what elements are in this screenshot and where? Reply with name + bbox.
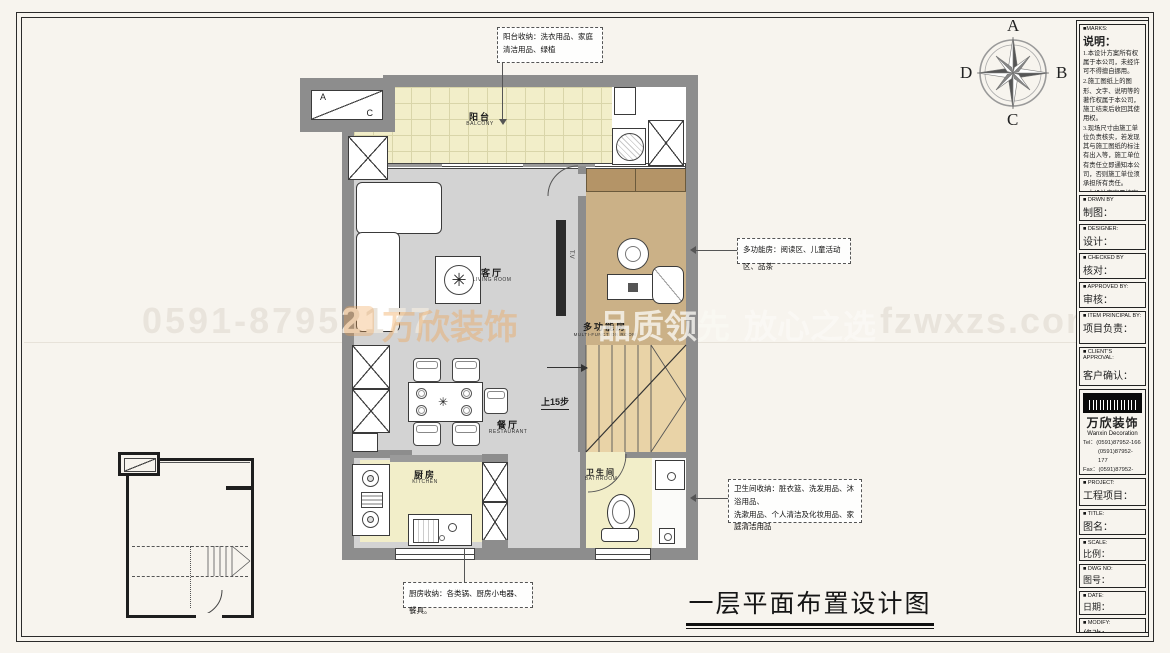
sofa-chaise — [356, 182, 442, 234]
field-principal: ■ ITEM PRINCIPAL BY: 项目负责： — [1079, 311, 1146, 344]
floor-drain-icon — [664, 533, 672, 541]
room-label-living: 客厅 LIVING ROOM — [460, 268, 524, 284]
note: 3.现场尺寸由施工单位负责核实，若发现其与施工图纸的标注有出入等，施工单位有责任… — [1083, 124, 1142, 188]
kitchen-counter-strip — [390, 455, 482, 462]
tea-table — [607, 274, 657, 300]
dining-table: ✳ — [408, 382, 483, 422]
dining-chair — [452, 358, 480, 382]
floor-drain — [659, 528, 675, 544]
marks-label-cn: 说明： — [1083, 33, 1142, 49]
contact-tel-2: (0591)87952-177 — [1083, 448, 1142, 466]
annotation-multi: 多功能房：阅读区、儿童活动区、品茶 — [737, 238, 851, 264]
stairs — [586, 345, 686, 452]
multifunction-cabinet — [586, 166, 686, 192]
toilet-bowl — [607, 494, 635, 532]
burner-icon — [362, 511, 379, 528]
key-plan-notch — [226, 486, 251, 490]
title-block: ■MARKS: 说明： 1.本设计方案所有权属于本公司，未经许可不得擅自挪用。 … — [1076, 20, 1149, 633]
company-logo-icon — [1083, 393, 1142, 413]
leader-arrow-icon — [690, 494, 696, 502]
room-label-multi: 多功能房 MULTI-FUNCTION ROOM — [557, 322, 653, 338]
shoe-cabinet — [352, 433, 378, 452]
field-checked-by: ■ CHECKED BY 核对： — [1079, 253, 1146, 279]
note: 4.本设计方案是按客户要求设计，经客户签字确认为同意认可，不得随意更改。 — [1083, 189, 1142, 192]
washing-machine — [612, 128, 646, 165]
column-cap — [482, 540, 508, 548]
key-plan-door-gap — [196, 613, 222, 619]
toilet-tank — [601, 528, 639, 542]
column-kitchen — [482, 462, 508, 502]
sink-bowl — [413, 519, 439, 543]
watermark-logo-icon — [344, 306, 374, 336]
ac-unit-box: A C — [311, 90, 383, 120]
company-block: 万欣装饰 Wanxin Decoration Tel：(0591)87952-1… — [1079, 389, 1146, 475]
faucet-icon — [448, 523, 457, 532]
field-drawn-by: ■ DRWN BY 制图： — [1079, 195, 1146, 221]
ac-label-c: C — [367, 108, 374, 118]
marks-label-en: ■MARKS: — [1083, 26, 1142, 32]
dining-chair — [484, 388, 508, 414]
company-name-cn: 万欣装饰 — [1083, 414, 1142, 431]
key-plan — [118, 448, 264, 628]
stairs-direction-arrow-icon — [581, 364, 588, 372]
field-date: ■ DATE: 日期： — [1079, 591, 1146, 615]
marks-section: ■MARKS: 说明： 1.本设计方案所有权属于本公司，未经许可不得擅自挪用。 … — [1079, 24, 1146, 192]
kitchen-window — [395, 548, 475, 560]
grill — [361, 492, 383, 508]
wall-top — [383, 75, 698, 87]
ac-label-a: A — [320, 92, 326, 102]
leader-line — [692, 498, 728, 499]
key-plan-rail — [160, 462, 250, 463]
bathroom-sink-drain-icon — [667, 472, 676, 481]
note: 2.施工图纸上的图形、文字、说明等的著作权属于本公司，施工结束后收回其使用权。 — [1083, 77, 1142, 123]
tv-label: T.V — [568, 250, 574, 259]
column-cap — [482, 454, 508, 462]
leader-line — [464, 548, 465, 582]
wall-corridor-bath — [580, 452, 586, 548]
leader-line — [502, 62, 503, 120]
sheet-title-underline — [686, 628, 934, 629]
laundry-cabinet — [614, 87, 636, 115]
annotation-balcony: 阳台收纳：洗衣用品、家庭清洁用品、绿植 — [497, 27, 603, 63]
annotation-bathroom: 卫生间收纳：脏衣篮、洗发用品、沐浴用品、 洗漱用品、个人清洁及化妆用品、家庭清洁… — [728, 479, 862, 523]
lounge-chair-cushion — [625, 246, 641, 262]
room-label-dining: 餐厅 RESTAURANT — [483, 420, 533, 436]
sheet-title: 一层平面布置设计图 — [686, 584, 934, 629]
dining-chair — [452, 422, 480, 446]
marks-notes: 1.本设计方案所有权属于本公司，未经许可不得擅自挪用。 2.施工图纸上的图形、文… — [1083, 49, 1142, 192]
tea-set — [628, 283, 638, 292]
floor-cushion — [652, 266, 684, 304]
sheet-title-text: 一层平面布置设计图 — [686, 584, 934, 626]
room-label-kitchen: 厨房 KITCHEN — [395, 470, 455, 486]
field-client-approval: ■ CLIENT'S APPROVAL: 客户确认： — [1079, 347, 1146, 386]
column-balcony — [648, 120, 684, 166]
plate — [416, 405, 427, 416]
compass-label-north: A — [1007, 16, 1019, 36]
annotation-balcony-text: 阳台收纳：洗衣用品、家庭清洁用品、绿植 — [503, 32, 593, 54]
leader-arrow-icon — [499, 119, 507, 125]
compass-label-west: D — [960, 63, 972, 83]
key-plan-ac-box — [118, 452, 160, 476]
tv-panel — [556, 220, 566, 316]
bathroom-sink — [655, 460, 685, 490]
note: 1.本设计方案所有权属于本公司，未经许可不得擅自挪用。 — [1083, 49, 1142, 76]
compass-label-east: B — [1056, 63, 1067, 83]
dining-chair — [413, 358, 441, 382]
field-dwg-no: ■ DWG NO: 图号： — [1079, 564, 1146, 588]
field-designer: ■ DESIGNER: 设计： — [1079, 224, 1146, 250]
leader-arrow-icon — [690, 246, 696, 254]
dining-chair — [413, 422, 441, 446]
plate — [416, 388, 427, 399]
burner-icon — [362, 470, 379, 487]
plate — [461, 405, 472, 416]
leader-line — [692, 250, 737, 251]
room-label-bathroom: 卫生间 BATHROOM — [573, 468, 629, 483]
contact-fax: Fax：(0591)87952-199 — [1083, 466, 1142, 475]
company-name-en: Wanxin Decoration — [1083, 431, 1142, 437]
key-plan-stairs — [202, 546, 250, 576]
compass-rose-icon — [973, 33, 1053, 113]
wall-living-multi — [578, 166, 586, 174]
field-project: ■ PROJECT: 工程项目： — [1079, 478, 1146, 506]
wall-right — [686, 75, 698, 560]
annotation-bathroom-text-1: 卫生间收纳：脏衣篮、洗发用品、沐浴用品、 — [734, 483, 856, 509]
drain-icon — [439, 535, 445, 541]
key-plan-dot-line — [190, 546, 191, 608]
field-modify: ■ MODIFY: 修改： — [1079, 618, 1146, 633]
annotation-kitchen: 厨房收纳：各类锅、厨房小电器、餐具。 — [403, 582, 533, 608]
kitchen-sink — [408, 514, 472, 546]
compass: A B C D — [958, 18, 1068, 128]
bathroom-window — [595, 548, 651, 560]
contact-tel-1: Tel：(0591)87952-166 — [1083, 439, 1142, 448]
field-scale: ■ SCALE: 比例： — [1079, 538, 1146, 561]
compass-label-south: C — [1007, 110, 1018, 130]
wall-bath-top — [625, 452, 686, 458]
multifunction-cabinet-divider — [635, 167, 636, 191]
toilet-seat — [612, 500, 630, 524]
column-kitchen — [482, 502, 508, 542]
company-contacts: Tel：(0591)87952-166 (0591)87952-177 Fax：… — [1083, 439, 1142, 475]
door-swing-arc — [548, 166, 578, 196]
lounge-chair — [617, 238, 649, 270]
column — [352, 345, 390, 389]
column — [352, 389, 390, 433]
drawing-sheet: A B C D A C — [0, 0, 1170, 653]
field-title: ■ TITLE: 图名： — [1079, 509, 1146, 535]
annotation-bathroom-text-2: 洗漱用品、个人清洁及化妆用品、家庭清洁用品 — [734, 509, 856, 535]
field-approved-by: ■ APPROVED BY: 审核： — [1079, 282, 1146, 308]
key-plan-ac-diagonal — [124, 458, 156, 472]
washing-machine-drum-icon — [616, 133, 644, 161]
stove — [352, 464, 390, 536]
column — [348, 136, 388, 180]
table-flower-icon: ✳ — [438, 395, 448, 409]
plate — [461, 388, 472, 399]
stairs-note: 上15步 — [541, 395, 569, 410]
